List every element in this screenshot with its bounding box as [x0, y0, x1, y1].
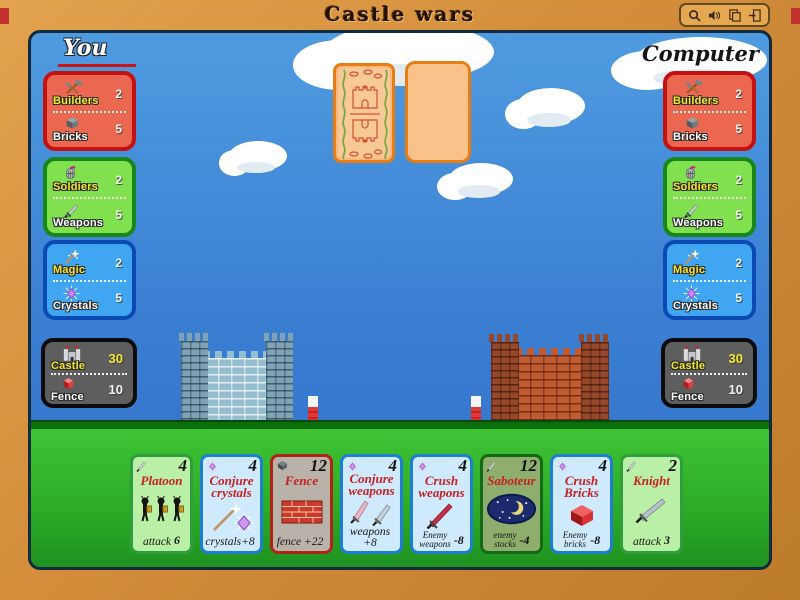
- red-brick-art: [556, 499, 607, 531]
- cloud: [449, 163, 513, 195]
- card-effect: Enemy weapons: [419, 531, 451, 548]
- fence-value: 10: [729, 382, 743, 397]
- cloud: [229, 141, 287, 171]
- brick-icon: [276, 460, 289, 471]
- castle-label: Castle: [671, 361, 705, 372]
- computer-castle-panel: Castle30 Fence10: [661, 338, 757, 408]
- weapons-icon: [63, 202, 83, 218]
- soldiers-label: Soldiers: [673, 182, 718, 193]
- card-effect-value: 3: [664, 533, 670, 548]
- soldiers-value: 2: [735, 173, 742, 187]
- hand-card-conjure-weapons[interactable]: 4 Conjure weapons weapons +8: [340, 454, 403, 554]
- cloud: [517, 88, 585, 124]
- panel-divider: [53, 197, 126, 199]
- card-cost: 4: [249, 458, 258, 473]
- magic-wand-icon: [63, 249, 80, 265]
- card-effect-value: 6: [174, 533, 180, 548]
- builders-icon: [683, 80, 703, 96]
- crystal-icon: [206, 460, 219, 473]
- two-swords-art: [346, 497, 397, 527]
- card-title: Platoon: [141, 475, 183, 487]
- red-sword-art: [416, 499, 467, 531]
- panel-divider: [673, 280, 746, 282]
- crystals-icon: [63, 285, 80, 301]
- card-title: Conjure weapons: [346, 473, 397, 497]
- sound-button[interactable]: [707, 8, 722, 23]
- card-cost: 12: [520, 458, 537, 473]
- builders-value: 2: [735, 87, 742, 101]
- exit-button[interactable]: [747, 8, 762, 23]
- hand-card-fence[interactable]: 12 Fence fence +22: [270, 454, 333, 554]
- soldiers-icon: [63, 166, 78, 182]
- bricks-icon: [63, 116, 80, 132]
- magic-wand-icon: [683, 249, 700, 265]
- weapons-value: 5: [735, 208, 742, 222]
- magnifier-icon: [688, 9, 701, 22]
- you-soldiers-panel: Soldiers2 Weapons5: [43, 157, 136, 237]
- card-effect-value: -8: [590, 533, 600, 548]
- panel-divider: [673, 197, 746, 199]
- hand-card-crush-bricks[interactable]: 4 Crush Bricks Enemy bricks-8: [550, 454, 613, 554]
- castle-tower: [581, 342, 609, 428]
- soldiers-label: Soldiers: [53, 182, 98, 193]
- castle-wall: [517, 355, 583, 428]
- computer-soldiers-panel: Soldiers2 Weapons5: [663, 157, 756, 237]
- crystals-label: Crystals: [53, 301, 98, 312]
- bricks-label: Bricks: [53, 132, 88, 143]
- soldiers-value: 2: [115, 173, 122, 187]
- fence-value: 10: [109, 382, 123, 397]
- bricks-label: Bricks: [673, 132, 708, 143]
- crystals-icon: [683, 285, 700, 301]
- sword-icon: [626, 460, 639, 472]
- card-cost: 4: [459, 458, 468, 473]
- hand-card-knight[interactable]: 2 Knight attack3: [620, 454, 683, 554]
- brick-wall-art: [276, 487, 327, 537]
- right-castle: [491, 334, 609, 428]
- panel-divider: [53, 111, 126, 113]
- crystal-icon: [556, 460, 569, 473]
- bricks-value: 5: [735, 122, 742, 136]
- builders-icon: [63, 80, 83, 96]
- castle-wall: [205, 358, 269, 428]
- card-cost: 12: [310, 458, 327, 473]
- fence-brick-icon: [681, 376, 696, 392]
- card-effect: Enemy bricks: [563, 531, 588, 548]
- card-title: Saboteur: [487, 475, 535, 487]
- card-effect-value: -4: [519, 533, 529, 548]
- soldiers-icon: [683, 166, 698, 182]
- ground-edge: [31, 420, 769, 429]
- card-effect: fence +22: [277, 537, 323, 548]
- wand-crystal-art: [206, 499, 257, 537]
- weapons-value: 5: [115, 208, 122, 222]
- builders-label: Builders: [673, 96, 719, 107]
- player-computer-label: Computer: [642, 41, 759, 66]
- card-back-art: [338, 68, 390, 158]
- panel-divider: [53, 280, 126, 282]
- bricks-value: 5: [115, 122, 122, 136]
- you-underline: [58, 64, 136, 67]
- fence-label: Fence: [51, 392, 84, 403]
- card-title: Crush weapons: [416, 475, 467, 499]
- player-you-label: You: [63, 35, 107, 61]
- weapons-label: Weapons: [673, 218, 723, 229]
- cards-button[interactable]: [727, 8, 742, 23]
- card-effect: weapons +8: [346, 527, 394, 549]
- card-effect-value: -8: [454, 533, 464, 548]
- night-moon-art: [486, 487, 537, 531]
- computer-magic-panel: Magic2 Crystals5: [663, 240, 756, 320]
- weapons-label: Weapons: [53, 218, 103, 229]
- hand-card-saboteur[interactable]: 12 Saboteur enemy stocks-4: [480, 454, 543, 554]
- sword-art: [626, 487, 677, 533]
- you-builders-panel: Builders2 Bricks5: [43, 71, 136, 151]
- sword-icon: [136, 460, 149, 472]
- fence-label: Fence: [671, 392, 704, 403]
- card-title: Fence: [285, 475, 318, 487]
- soldiers-art: [136, 487, 187, 533]
- card-title: Knight: [633, 475, 670, 487]
- card-effect: attack: [143, 537, 171, 548]
- game-board: You Computer Builders2 Bricks5 Soldiers2…: [28, 30, 772, 570]
- crystals-label: Crystals: [673, 301, 718, 312]
- discard-card-blank: [405, 61, 471, 163]
- castle-tower: [181, 341, 208, 428]
- zoom-button[interactable]: [687, 8, 702, 23]
- castle-icon: [61, 345, 83, 361]
- card-effect: crystals+8: [205, 537, 254, 548]
- builders-label: Builders: [53, 96, 99, 107]
- card-title: Conjure crystals: [206, 475, 257, 499]
- castle-value: 30: [109, 351, 123, 366]
- hand-card-conjure-crystals[interactable]: 4 Conjure crystals crystals+8: [200, 454, 263, 554]
- crystals-value: 5: [735, 291, 742, 305]
- you-magic-panel: Magic2 Crystals5: [43, 240, 136, 320]
- card-cost: 4: [599, 458, 608, 473]
- hand-card-platoon[interactable]: 4 Platoon attack6: [130, 454, 193, 554]
- bricks-icon: [683, 116, 700, 132]
- window-toolbar: [679, 3, 770, 27]
- crystal-icon: [416, 460, 429, 473]
- card-title: Crush Bricks: [556, 475, 607, 499]
- cards-icon: [728, 9, 741, 22]
- sword-icon: [486, 460, 499, 472]
- card-effect: enemy stocks: [494, 531, 517, 548]
- you-castle-panel: Castle30 Fence10: [41, 338, 137, 408]
- panel-divider: [671, 373, 747, 375]
- castle-tower: [266, 341, 293, 428]
- castle-icon: [681, 345, 703, 361]
- deck-card-back[interactable]: [333, 63, 395, 163]
- castle-label: Castle: [51, 361, 85, 372]
- castle-tower: [491, 342, 519, 428]
- fence-brick-icon: [61, 376, 76, 392]
- card-effect: attack: [633, 537, 661, 548]
- hand-card-crush-weapons[interactable]: 4 Crush weapons Enemy weapons-8: [410, 454, 473, 554]
- magic-value: 2: [735, 256, 742, 270]
- speaker-icon: [708, 9, 721, 22]
- computer-builders-panel: Builders2 Bricks5: [663, 71, 756, 151]
- panel-divider: [51, 373, 127, 375]
- crystals-value: 5: [115, 291, 122, 305]
- magic-value: 2: [115, 256, 122, 270]
- weapons-icon: [683, 202, 703, 218]
- magic-label: Magic: [53, 265, 85, 276]
- magic-label: Magic: [673, 265, 705, 276]
- left-castle: [181, 333, 293, 428]
- panel-divider: [673, 111, 746, 113]
- exit-door-icon: [748, 9, 761, 22]
- card-cost: 4: [179, 458, 188, 473]
- castle-value: 30: [729, 351, 743, 366]
- builders-value: 2: [115, 87, 122, 101]
- card-cost: 2: [669, 458, 678, 473]
